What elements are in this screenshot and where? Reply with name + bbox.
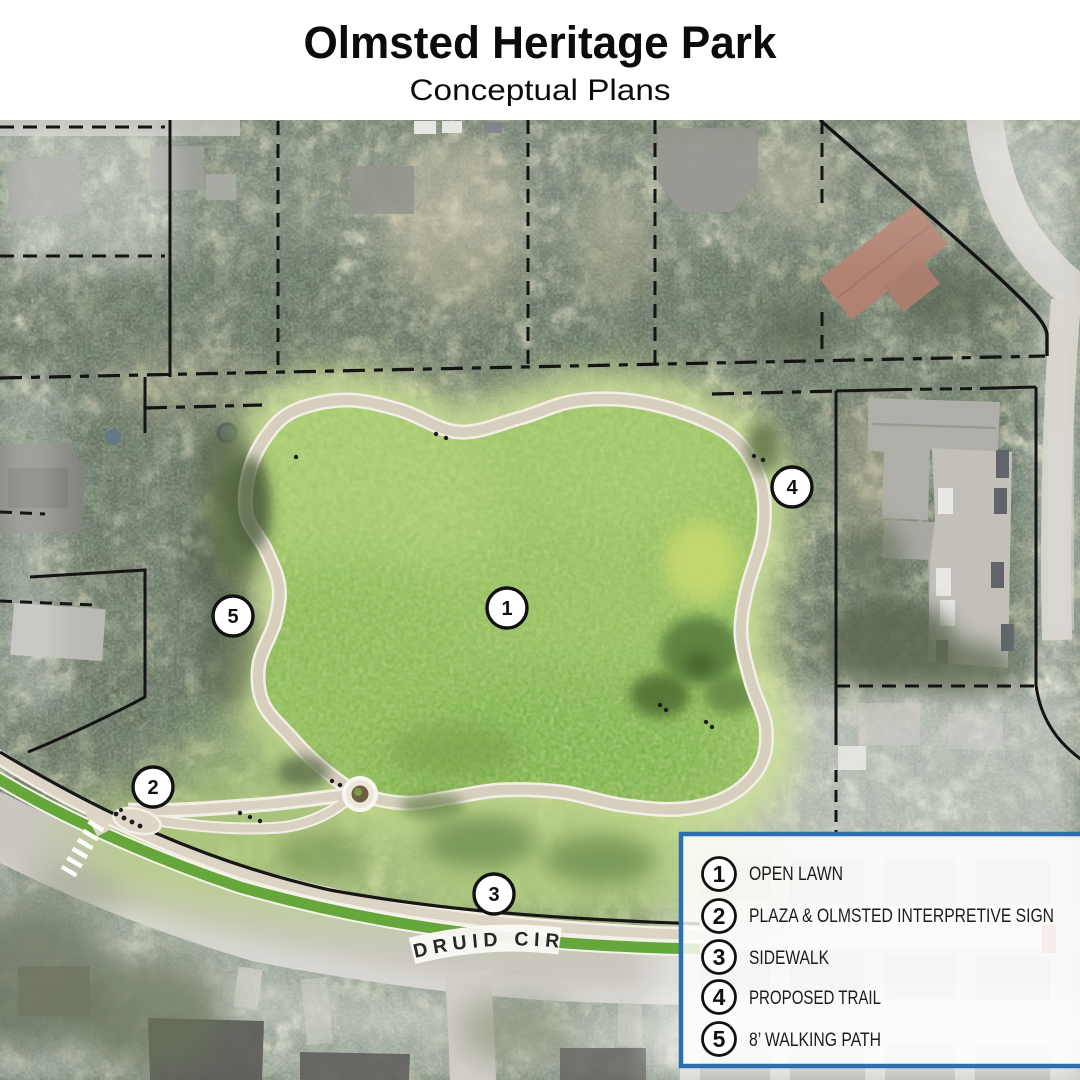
svg-text:1: 1 (713, 861, 726, 887)
svg-text:PROPOSED TRAIL: PROPOSED TRAIL (749, 988, 881, 1009)
svg-text:SIDEWALK: SIDEWALK (749, 948, 829, 969)
svg-text:8’ WALKING PATH: 8’ WALKING PATH (749, 1030, 881, 1051)
svg-text:1: 1 (501, 598, 512, 620)
svg-text:OPEN LAWN: OPEN LAWN (749, 864, 843, 885)
svg-text:Conceptual Plans: Conceptual Plans (410, 74, 671, 107)
svg-text:2: 2 (147, 777, 158, 799)
svg-text:3: 3 (713, 944, 726, 970)
svg-text:4: 4 (713, 984, 726, 1010)
svg-text:5: 5 (713, 1026, 726, 1052)
svg-text:PLAZA & OLMSTED INTERPRETIVE S: PLAZA & OLMSTED INTERPRETIVE SIGN (749, 906, 1054, 927)
svg-text:Olmsted Heritage Park: Olmsted Heritage Park (304, 17, 778, 68)
svg-text:3: 3 (488, 884, 499, 906)
svg-text:2: 2 (713, 903, 726, 929)
svg-text:5: 5 (227, 606, 238, 628)
svg-text:4: 4 (786, 477, 798, 499)
